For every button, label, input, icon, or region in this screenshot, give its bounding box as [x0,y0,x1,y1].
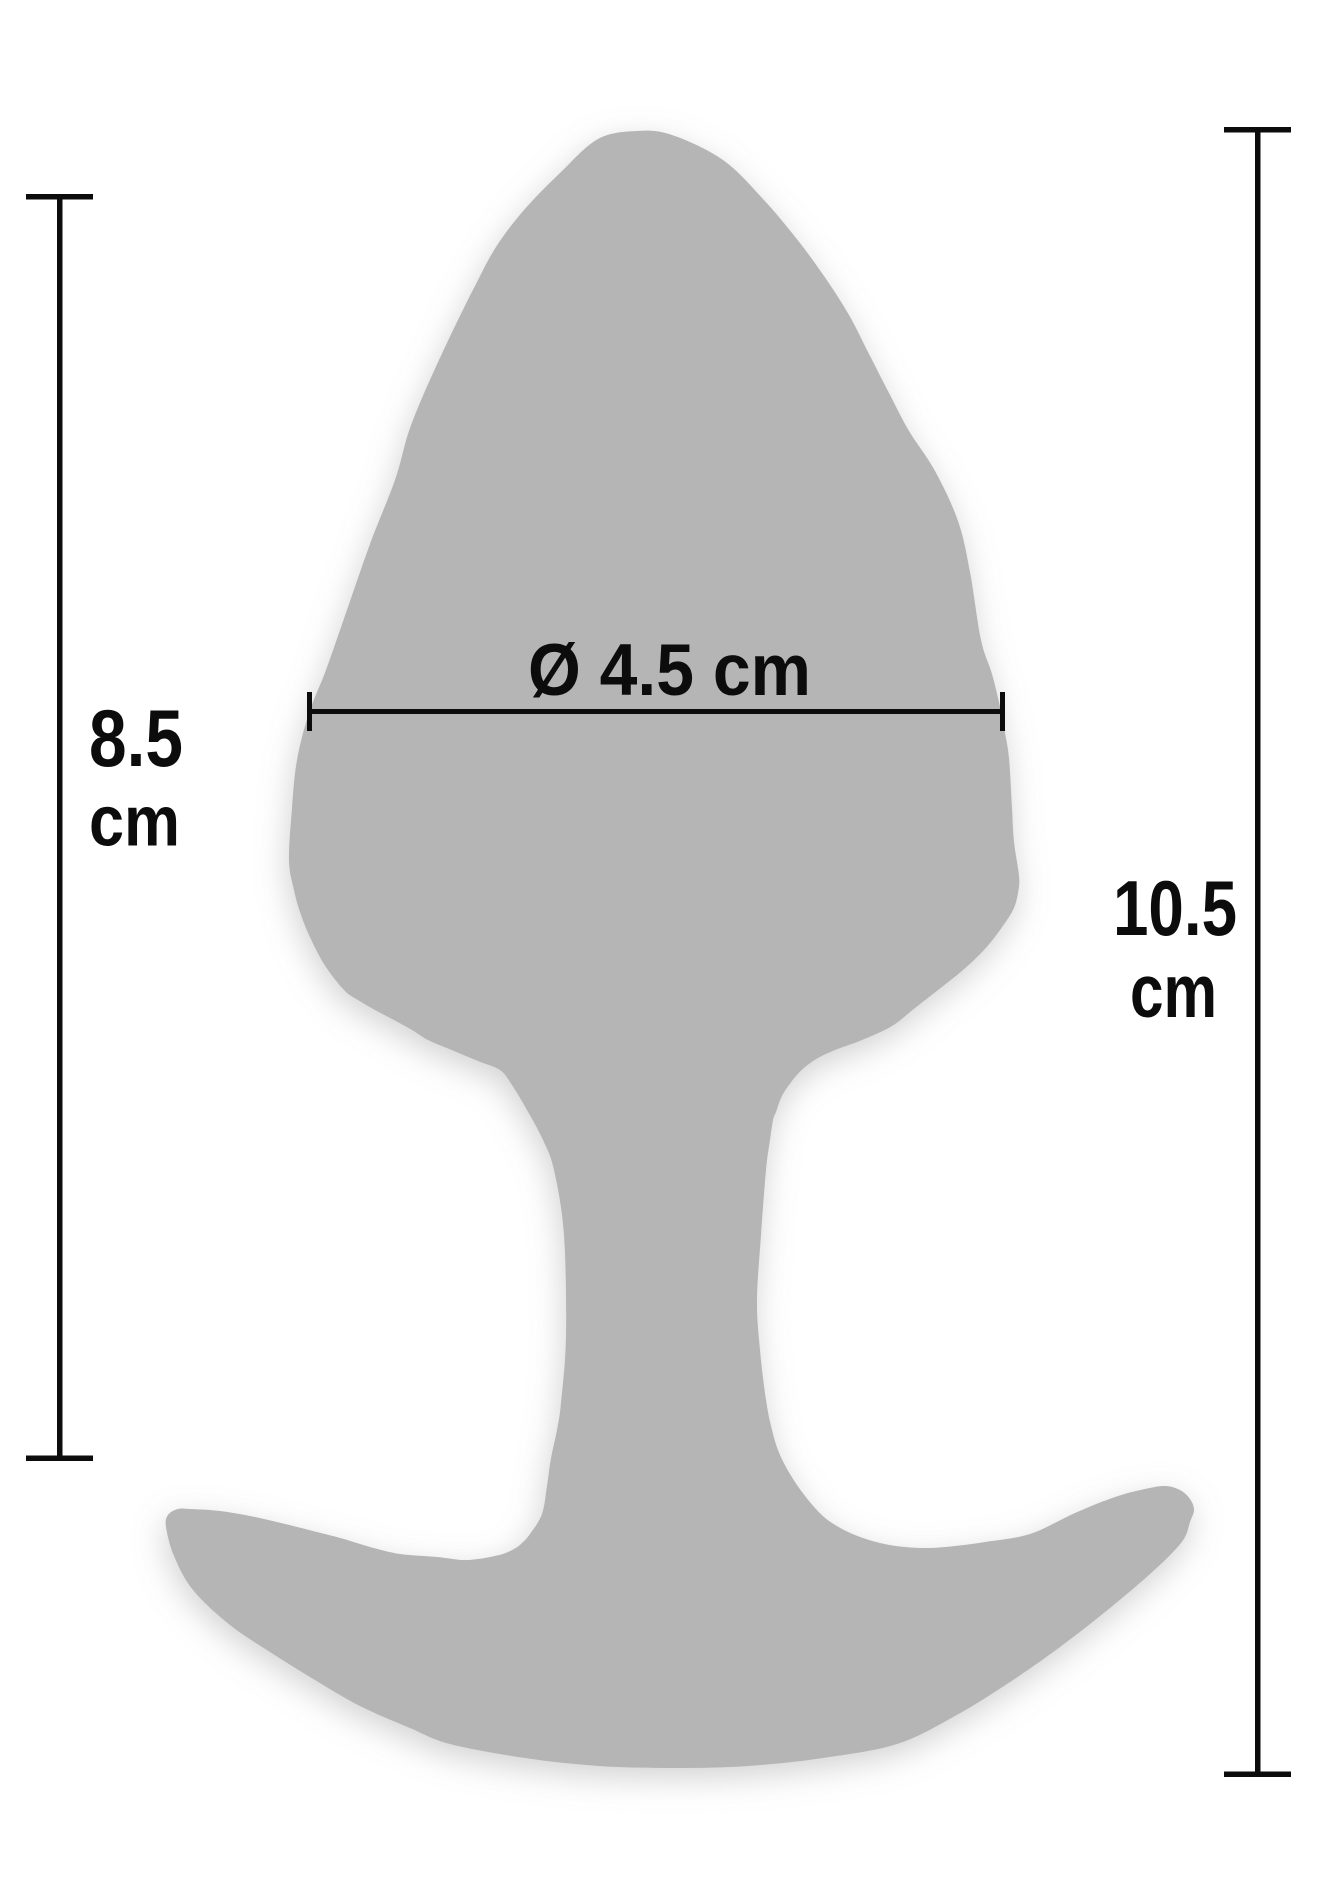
svg-text:8.5: 8.5 [89,694,183,784]
svg-text:Ø 4.5 cm: Ø 4.5 cm [528,630,811,711]
svg-text:10.5: 10.5 [1113,864,1237,952]
svg-text:cm: cm [1130,949,1217,1033]
svg-text:cm: cm [89,783,180,862]
